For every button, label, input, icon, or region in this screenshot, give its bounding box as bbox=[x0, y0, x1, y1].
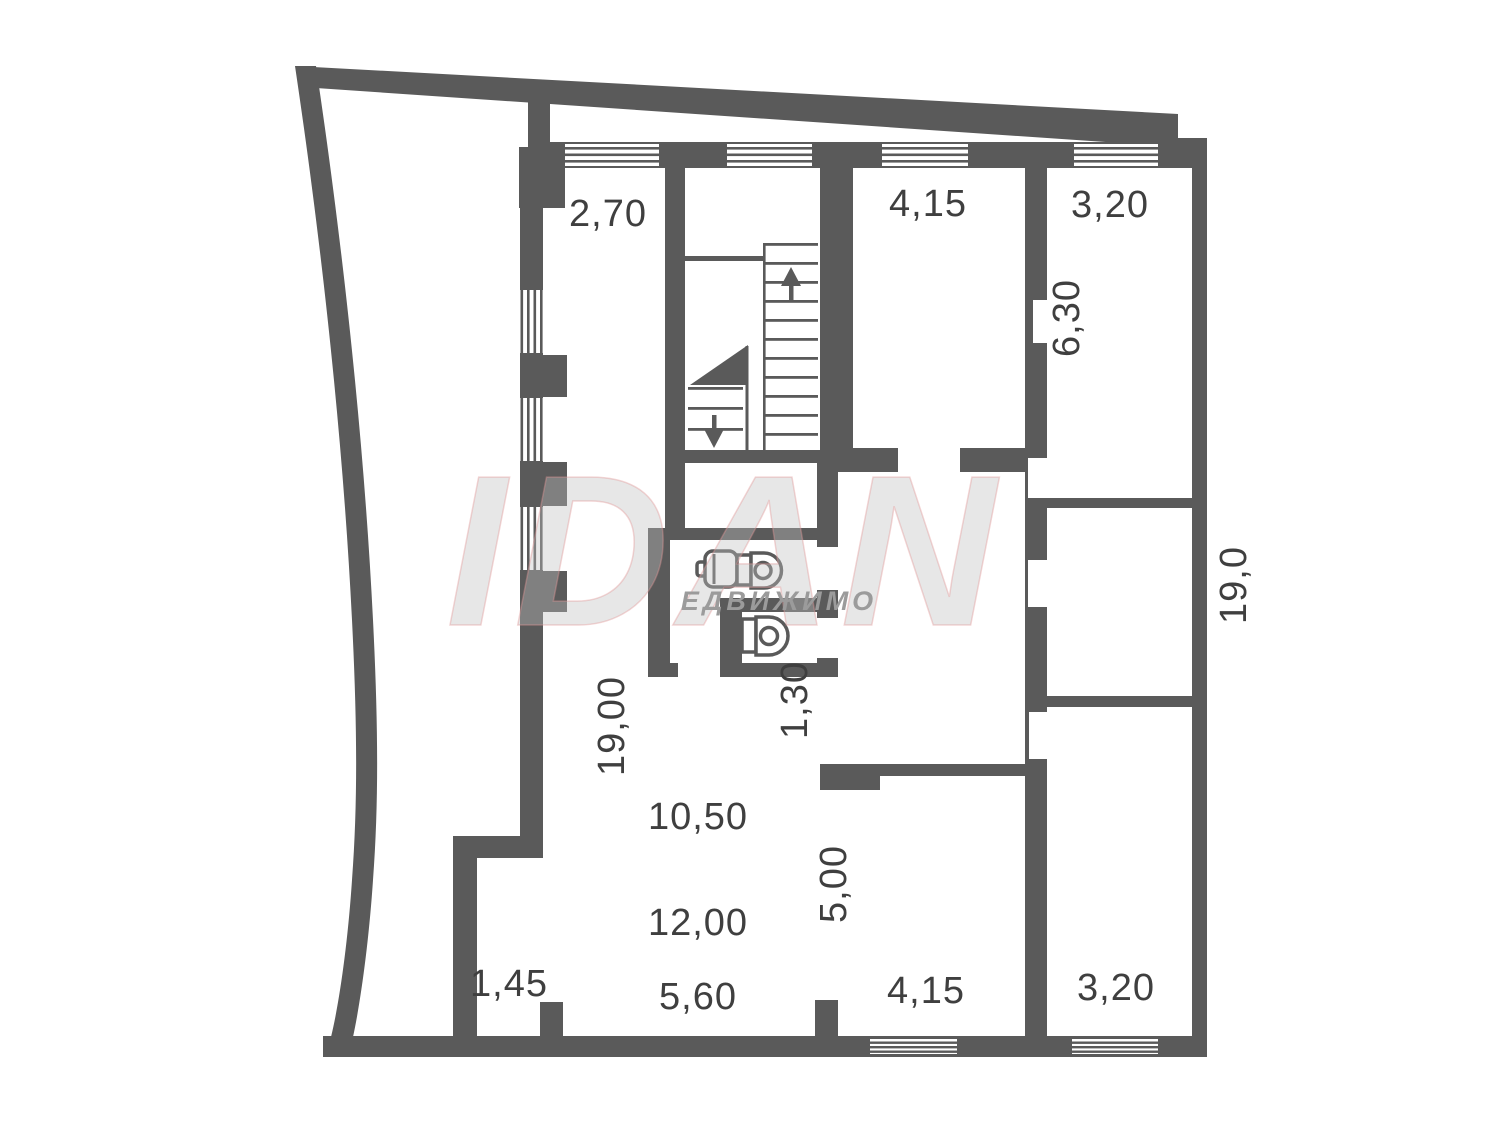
bottom-pier-left bbox=[540, 1002, 563, 1037]
window-top-4-icon bbox=[1074, 144, 1158, 166]
right-rooms-wall-sliver4 bbox=[1025, 712, 1029, 759]
window-left-1-icon bbox=[518, 290, 545, 353]
left-wall-lower bbox=[453, 836, 477, 1037]
window-bottom-1-icon bbox=[870, 1039, 957, 1054]
top-left-connector bbox=[528, 92, 550, 154]
dim-wc-width: 1,30 bbox=[774, 661, 816, 739]
outer-top-wall bbox=[295, 66, 1178, 147]
watermark: IDAN ЕДВИЖИМО bbox=[446, 430, 1004, 671]
right-rooms-wall-seg2 bbox=[1025, 343, 1047, 458]
window-bottom-2-icon bbox=[1072, 1039, 1158, 1054]
alcove-stub-block bbox=[820, 764, 880, 790]
stairs-up-arrow-icon bbox=[781, 267, 801, 300]
staircase bbox=[685, 243, 818, 458]
dim-top-right-room-width: 3,20 bbox=[1071, 184, 1149, 226]
outer-right-wall bbox=[1192, 145, 1207, 1057]
stair-hall-right-wall bbox=[820, 168, 853, 472]
floorplan-page: 2,70 4,15 3,20 6,30 19,0 19,00 1,30 10,5… bbox=[0, 0, 1500, 1125]
right-rooms-divider-1 bbox=[1025, 498, 1193, 508]
dim-alcove-depth: 5,00 bbox=[813, 845, 855, 923]
dim-top-left-room-width: 2,70 bbox=[569, 193, 647, 235]
watermark-subtext: ЕДВИЖИМО bbox=[681, 586, 877, 616]
dim-nook-width: 1,45 bbox=[470, 963, 548, 1005]
outer-curved-left-wall bbox=[295, 66, 377, 1037]
floorplan-drawing: 2,70 4,15 3,20 6,30 19,0 19,00 1,30 10,5… bbox=[0, 0, 1500, 1125]
dim-building-depth-right: 19,0 bbox=[1213, 546, 1255, 624]
dim-hall-lower-width: 5,60 bbox=[659, 976, 737, 1018]
dim-hall-upper-width: 10,50 bbox=[648, 796, 748, 838]
right-rooms-wall-sliver2 bbox=[1025, 458, 1028, 498]
dim-top-mid-room-width: 4,15 bbox=[889, 183, 967, 225]
dim-top-right-room-depth: 6,30 bbox=[1046, 279, 1088, 357]
dim-left-room-depth: 19,00 bbox=[591, 676, 633, 776]
window-top-3-icon bbox=[882, 144, 968, 166]
right-rooms-wall-seg5 bbox=[1025, 759, 1047, 1037]
bottom-pier-mid bbox=[815, 1000, 838, 1036]
right-rooms-divider-2 bbox=[1025, 696, 1193, 707]
dim-hall-mid-width: 12,00 bbox=[648, 902, 748, 944]
dim-bottom-mid-room-width: 4,15 bbox=[887, 970, 965, 1012]
window-top-1-icon bbox=[565, 144, 659, 166]
right-rooms-wall-sliver3 bbox=[1025, 560, 1028, 607]
right-rooms-wall-sliver1 bbox=[1025, 300, 1033, 343]
right-rooms-wall-seg1 bbox=[1025, 168, 1047, 300]
stair-landing-edge bbox=[685, 256, 763, 261]
watermark-logo: IDAN bbox=[446, 430, 1004, 671]
dim-bottom-right-room-width: 3,20 bbox=[1077, 967, 1155, 1009]
left-wall-pier-1 bbox=[520, 355, 567, 397]
window-top-2-icon bbox=[727, 144, 812, 166]
